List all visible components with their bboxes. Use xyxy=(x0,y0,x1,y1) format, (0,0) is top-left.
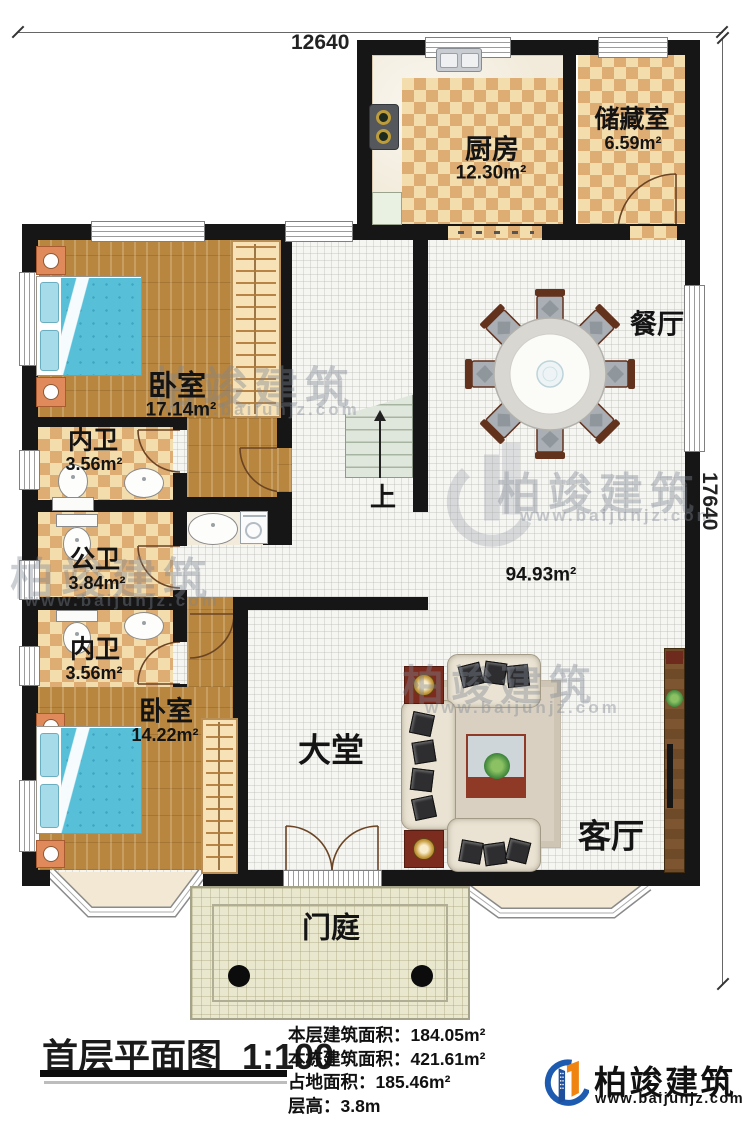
tv xyxy=(667,744,673,808)
plant xyxy=(484,753,510,779)
wall xyxy=(173,684,187,687)
stat-value: 184.05m² xyxy=(411,1025,486,1045)
wardrobe xyxy=(231,240,281,418)
wall xyxy=(685,40,700,886)
stat-value: 3.8m xyxy=(341,1096,381,1116)
sink xyxy=(124,612,164,640)
stat-value: 185.46m² xyxy=(376,1072,451,1092)
wall xyxy=(22,870,50,886)
room-label-bath3: 内卫 xyxy=(70,638,120,663)
room-area-bedroom2: 14.22m² xyxy=(131,726,198,744)
storage-window xyxy=(598,37,668,58)
bath2-window xyxy=(19,560,40,600)
sofa-south xyxy=(447,818,541,872)
bedroom2-door xyxy=(190,614,234,658)
stat-row: 本栋建筑面积：421.61m² xyxy=(288,1048,485,1072)
dimension-line-top xyxy=(17,32,723,33)
bedroom2-doorway xyxy=(187,597,233,610)
lamp-side-table xyxy=(404,666,444,704)
room-label-dining: 餐厅 xyxy=(630,312,684,339)
room-label-bedroom1: 卧室 xyxy=(148,373,206,402)
bath3-door xyxy=(138,642,180,684)
room-area-bath3: 3.56m² xyxy=(65,664,122,682)
room-label-porch: 门庭 xyxy=(302,915,360,944)
stat-value: 421.61m² xyxy=(411,1049,486,1069)
wall xyxy=(233,597,428,610)
entry-door-left xyxy=(286,826,332,872)
porch-column-right xyxy=(411,965,433,987)
room-area-kitchen: 12.30m² xyxy=(456,164,527,183)
bedroom1-window-top-1 xyxy=(91,221,205,242)
watermark-logo-mark xyxy=(445,425,535,565)
bed xyxy=(36,726,142,834)
sofa-north xyxy=(447,654,541,708)
stat-label: 占地面积： xyxy=(288,1072,376,1092)
kitchen-doorway-track xyxy=(458,231,534,234)
blanket xyxy=(61,278,141,375)
wardrobe xyxy=(201,718,238,874)
room-label-kitchen: 厨房 xyxy=(465,137,519,164)
room-area-bath2: 3.84m² xyxy=(68,574,125,592)
nightstand xyxy=(36,840,65,868)
pillow-blue xyxy=(40,733,59,777)
bedroom1-window-top-2 xyxy=(285,221,353,242)
coffee-table xyxy=(466,734,526,798)
entry-door-right xyxy=(332,826,378,872)
sink xyxy=(188,513,238,545)
room-label-storage: 储藏室 xyxy=(594,108,669,133)
bed xyxy=(36,276,142,376)
wall xyxy=(277,492,292,545)
lamp-side-table xyxy=(404,830,444,868)
floor-plan: 柏竣建筑 www.baijunjz.com 柏竣建筑 www.baijunjz.… xyxy=(0,0,750,1125)
stat-row: 层高：3.8m xyxy=(288,1095,485,1119)
bath1-door xyxy=(138,430,180,472)
storage-doorway xyxy=(630,226,677,240)
wall xyxy=(173,590,187,597)
stat-row: 本层建筑面积：184.05m² xyxy=(288,1024,485,1048)
pillow-blue xyxy=(40,784,59,828)
dining-table xyxy=(494,318,606,430)
brand-url: www.baijunjz.com xyxy=(595,1091,744,1107)
kitchen-sink xyxy=(436,48,482,72)
title-underline xyxy=(40,1070,287,1077)
dimension-line-right xyxy=(722,38,723,985)
room-label-living: 客厅 xyxy=(578,820,644,853)
stat-label: 本层建筑面积： xyxy=(288,1025,411,1045)
nightstand xyxy=(36,246,66,275)
porch-column-left xyxy=(228,965,250,987)
room-area-bath1: 3.56m² xyxy=(65,455,122,473)
open-area-label: 94.93m² xyxy=(506,566,577,585)
wall xyxy=(413,238,428,512)
decor-box xyxy=(666,651,683,664)
room-area-bedroom1: 17.14m² xyxy=(146,401,217,420)
stat-label: 本栋建筑面积： xyxy=(288,1049,411,1069)
wall xyxy=(22,597,173,610)
wall xyxy=(563,48,576,227)
stair-arrow-head xyxy=(374,410,386,421)
bedroom1-doorway xyxy=(277,448,292,492)
pillow-blue xyxy=(40,330,59,371)
wall xyxy=(22,500,187,512)
bath3-window xyxy=(19,646,40,686)
stair-arrow-line xyxy=(379,420,381,478)
tv-cabinet xyxy=(664,648,685,873)
room-area-storage: 6.59m² xyxy=(604,134,661,152)
wall xyxy=(173,512,187,546)
room-label-hall: 大堂 xyxy=(298,734,364,767)
dimension-top-label: 12640 xyxy=(291,31,349,55)
room-label-bath1: 内卫 xyxy=(68,429,118,454)
brand-logo-icon xyxy=(543,1054,589,1110)
title-underline-shadow xyxy=(44,1081,287,1084)
blanket xyxy=(61,728,141,833)
pillow-blue xyxy=(40,282,59,323)
room-label-bedroom2: 卧室 xyxy=(139,699,193,726)
stats-block: 本层建筑面积：184.05m² 本栋建筑面积：421.61m² 占地面积：185… xyxy=(288,1024,485,1118)
dimension-right-label: 17640 xyxy=(697,472,721,530)
nightstand xyxy=(36,377,66,407)
stove xyxy=(369,104,399,150)
stat-row: 占地面积：185.46m² xyxy=(288,1071,485,1095)
dining-window-right xyxy=(684,285,705,452)
stairs-up-label: 上 xyxy=(370,484,396,510)
room-label-bath2: 公卫 xyxy=(70,548,120,573)
wall xyxy=(380,870,700,886)
bath2-door xyxy=(138,546,180,588)
bath1-window xyxy=(19,450,40,490)
wall xyxy=(173,597,187,610)
wall xyxy=(187,497,278,512)
stat-label: 层高： xyxy=(288,1096,341,1116)
fridge xyxy=(372,192,402,225)
washing-machine xyxy=(240,511,268,544)
plant xyxy=(666,690,683,707)
sofa-west xyxy=(401,700,456,830)
sink xyxy=(124,468,164,498)
wall xyxy=(173,610,187,642)
